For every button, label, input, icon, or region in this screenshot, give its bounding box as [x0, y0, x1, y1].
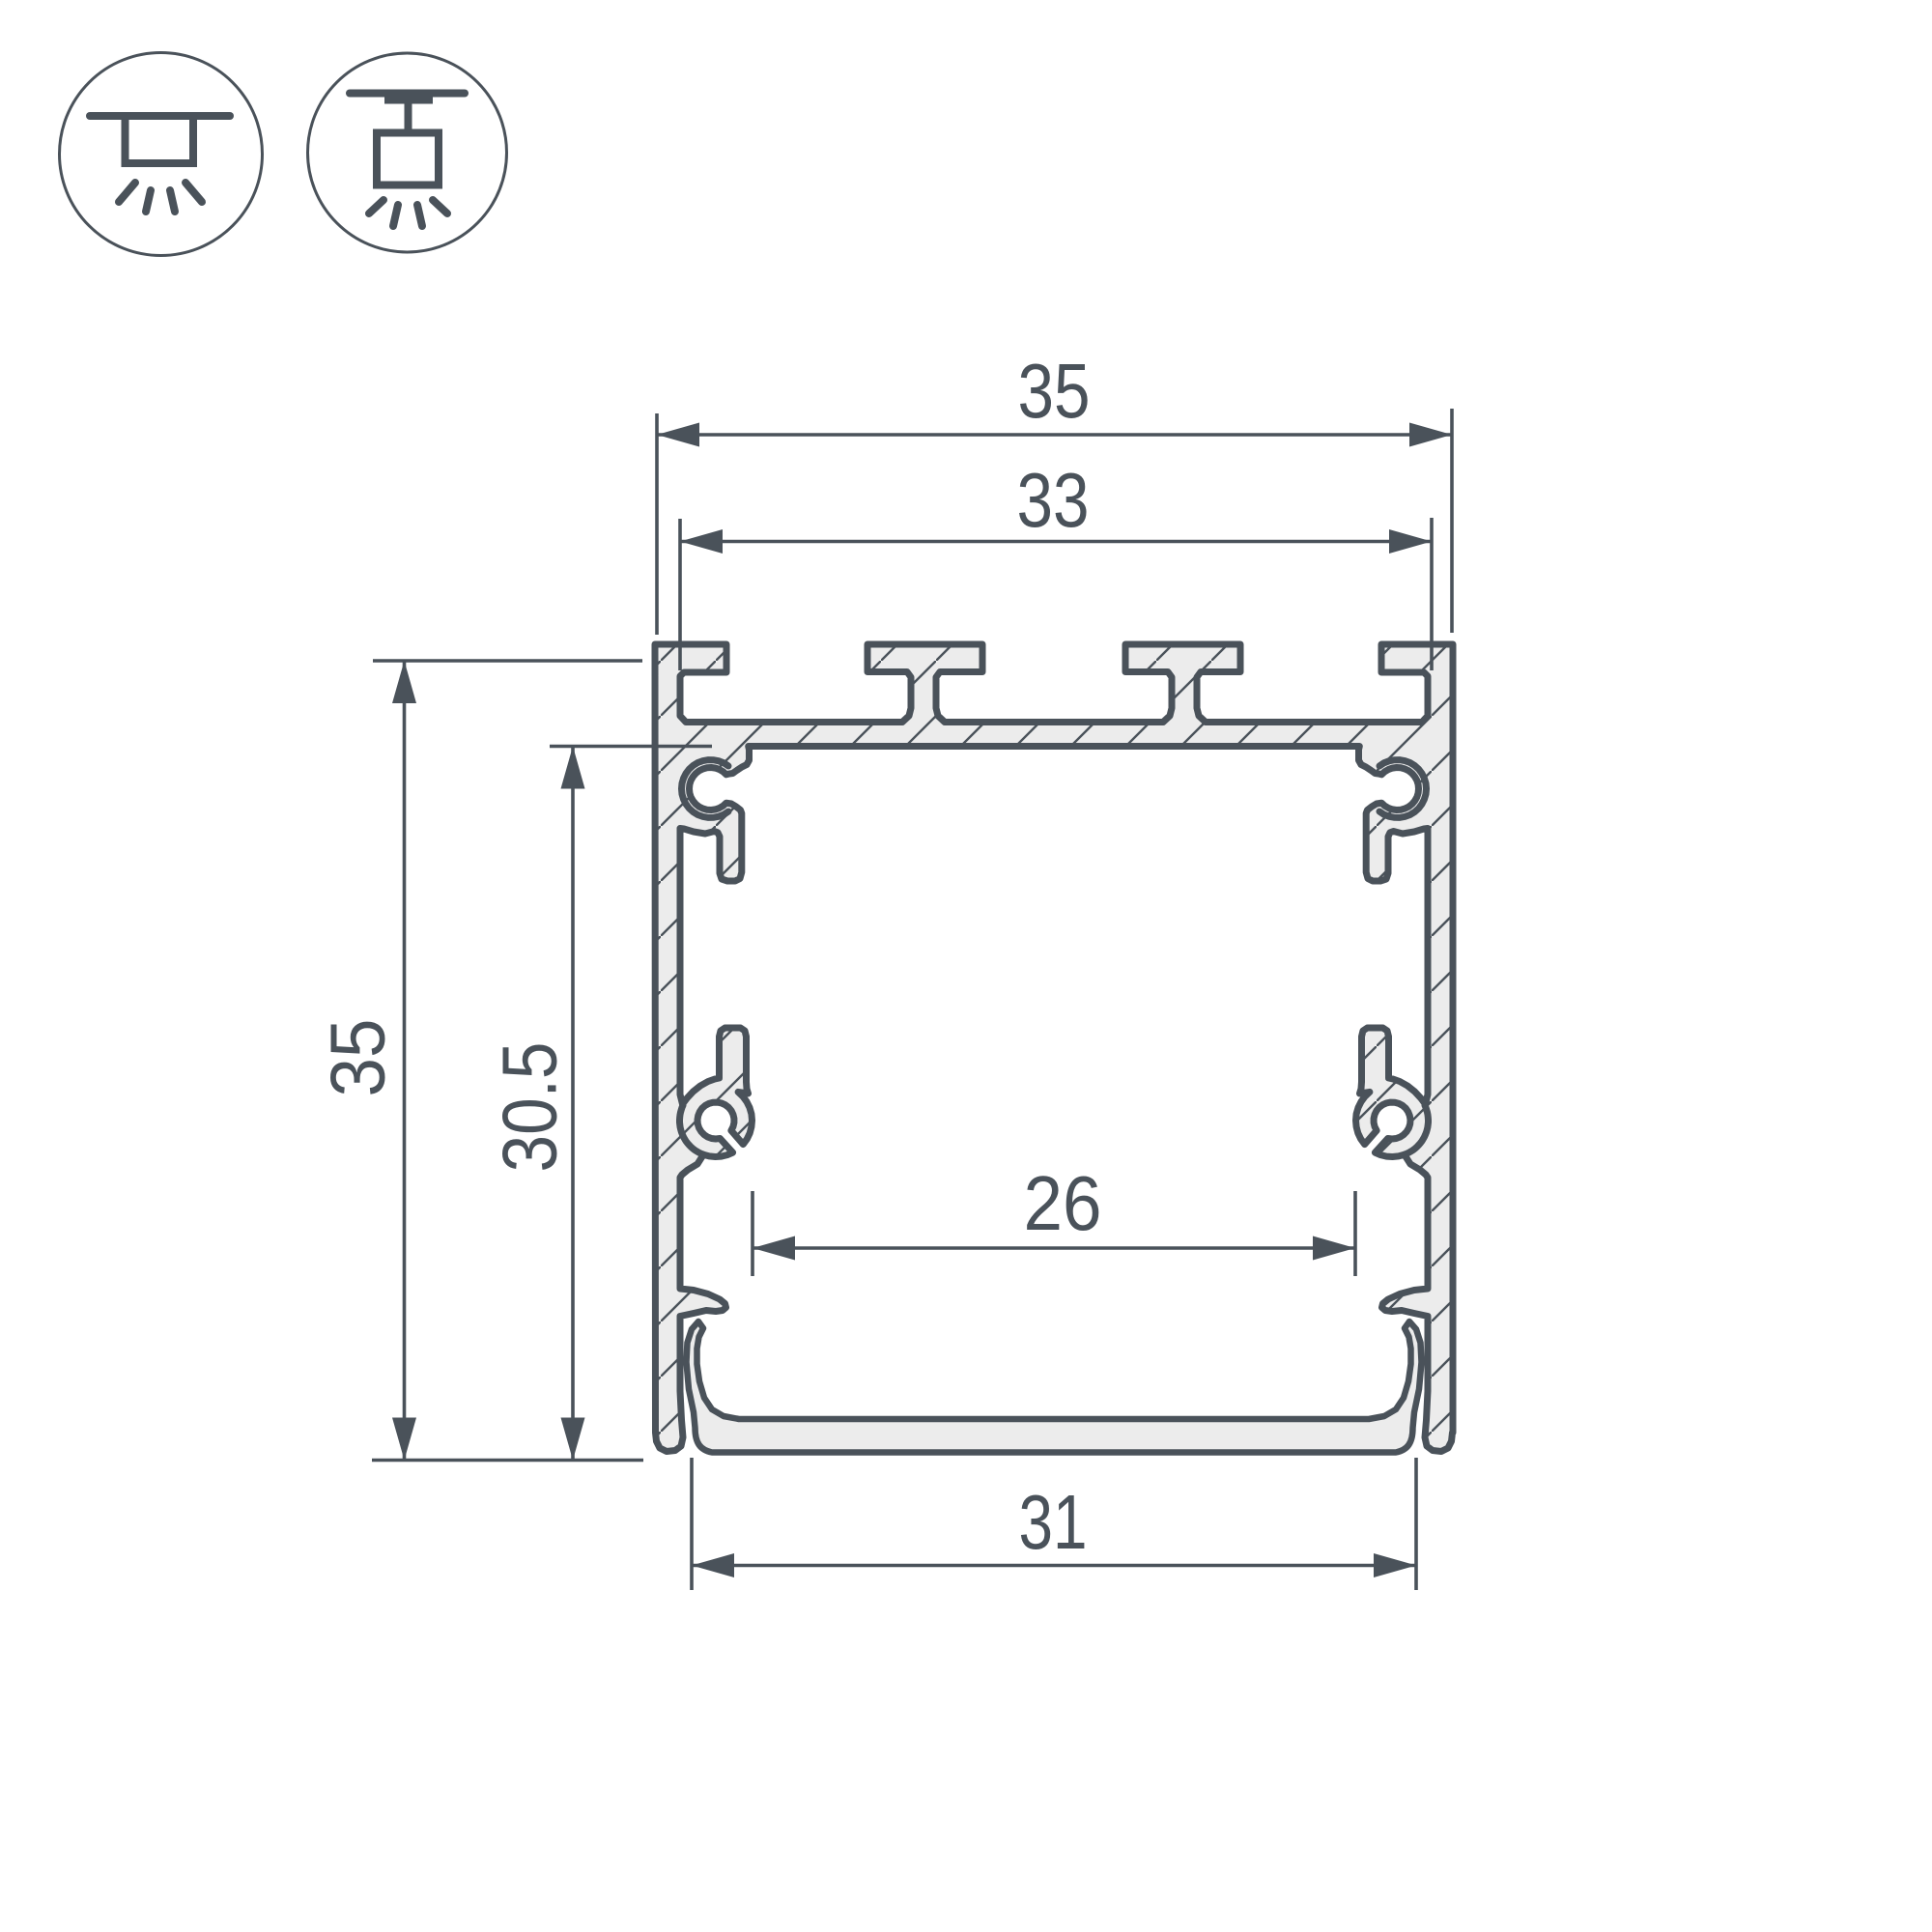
svg-text:35: 35: [315, 1019, 401, 1097]
svg-text:33: 33: [1017, 457, 1090, 543]
svg-text:35: 35: [1018, 348, 1091, 434]
svg-text:30.5: 30.5: [487, 1042, 573, 1173]
svg-text:31: 31: [1019, 1479, 1088, 1565]
svg-text:26: 26: [1024, 1160, 1102, 1246]
